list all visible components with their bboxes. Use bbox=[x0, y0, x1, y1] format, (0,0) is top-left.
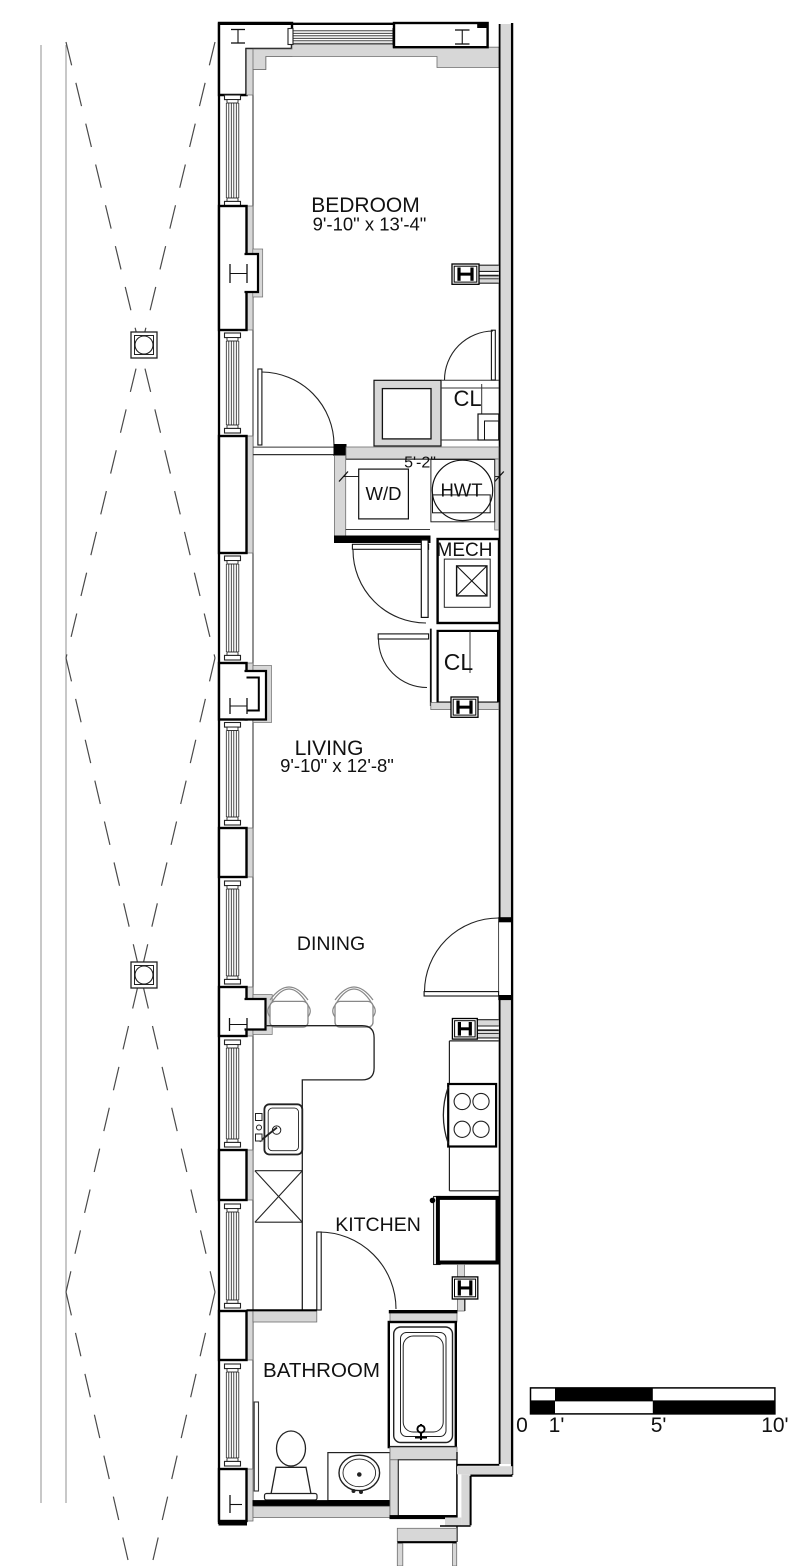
svg-text:BATHROOM: BATHROOM bbox=[263, 1359, 380, 1382]
svg-text:MECH: MECH bbox=[437, 540, 493, 561]
svg-text:HWT: HWT bbox=[440, 480, 482, 501]
svg-text:CL: CL bbox=[453, 386, 481, 411]
svg-text:9'-10" x 13'-4": 9'-10" x 13'-4" bbox=[313, 214, 427, 235]
svg-text:10': 10' bbox=[761, 1414, 788, 1437]
svg-text:1': 1' bbox=[549, 1414, 565, 1437]
svg-text:KITCHEN: KITCHEN bbox=[335, 1214, 421, 1236]
svg-text:W/D: W/D bbox=[366, 483, 402, 504]
svg-text:CL: CL bbox=[444, 649, 474, 675]
svg-text:5': 5' bbox=[651, 1414, 667, 1437]
svg-text:9'-10" x 12'-8": 9'-10" x 12'-8" bbox=[280, 755, 394, 776]
svg-text:0: 0 bbox=[516, 1414, 528, 1437]
svg-text:DINING: DINING bbox=[297, 933, 365, 955]
